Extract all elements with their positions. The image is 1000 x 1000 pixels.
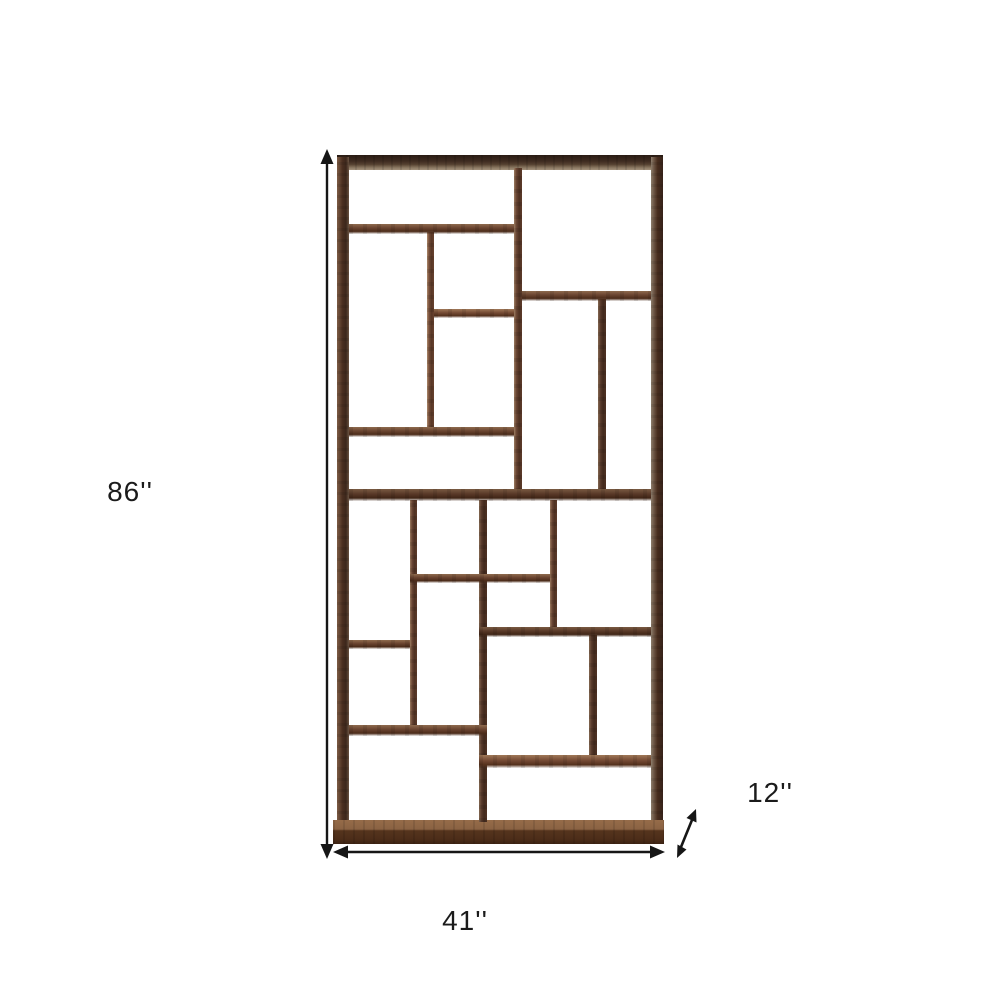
bookcase-shelf-middle bbox=[349, 489, 651, 501]
bookcase-divider-vertical bbox=[514, 168, 522, 492]
bookcase-shelf bbox=[349, 640, 410, 649]
bookcase-divider-vertical bbox=[598, 299, 606, 492]
bookcase-shelf bbox=[410, 574, 550, 583]
bookcase-shelf bbox=[479, 627, 651, 637]
bookcase-shelf bbox=[349, 224, 514, 234]
width-arrow-icon bbox=[333, 846, 665, 859]
bookcase-divider-vertical bbox=[427, 232, 434, 429]
bookcase-frame-bottom bbox=[333, 820, 664, 844]
depth-arrow-icon bbox=[677, 809, 697, 858]
bookcase-frame-top bbox=[337, 155, 663, 170]
bookcase-shelf bbox=[434, 309, 514, 318]
bookcase-shelf bbox=[349, 427, 514, 437]
bookcase-divider-vertical bbox=[589, 635, 597, 758]
width-dimension-label: 41'' bbox=[430, 907, 500, 935]
height-dimension-label: 86'' bbox=[95, 478, 165, 506]
bookcase-shelf bbox=[522, 291, 651, 301]
bookcase-shelf bbox=[479, 755, 651, 768]
bookcase-divider-vertical bbox=[479, 500, 487, 822]
height-arrow-icon bbox=[321, 149, 334, 859]
bookcase-frame-left bbox=[337, 157, 349, 825]
bookcase-frame-right bbox=[651, 157, 663, 825]
bookcase-divider-vertical bbox=[410, 500, 417, 728]
bookcase-divider-vertical bbox=[550, 500, 557, 630]
depth-dimension-label: 12'' bbox=[735, 779, 805, 807]
product-dimension-image: 86'' 41'' 12'' bbox=[0, 0, 1000, 1000]
bookcase-shelf bbox=[349, 725, 487, 736]
